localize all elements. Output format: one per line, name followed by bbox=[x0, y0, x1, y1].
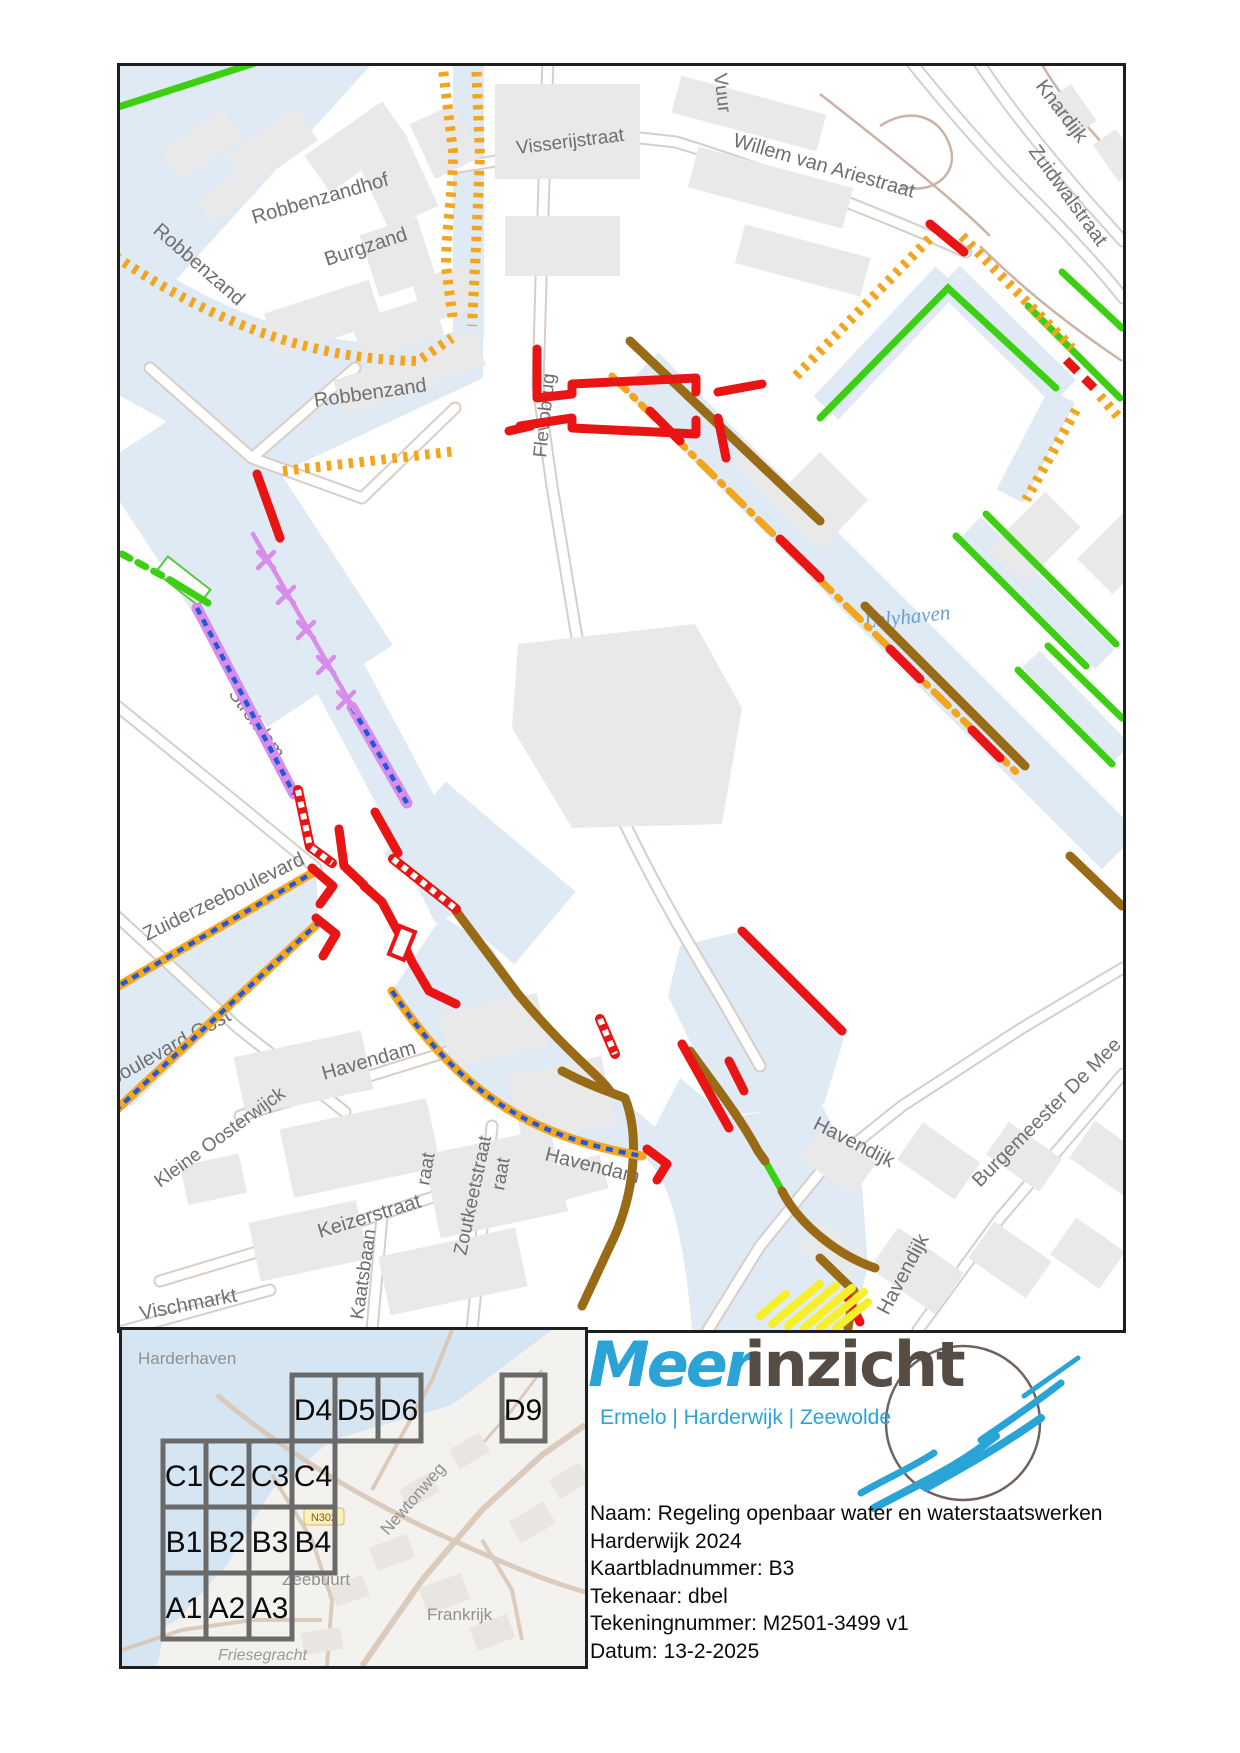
info-line-tekenaar: Tekenaar: dbel bbox=[590, 1583, 1120, 1611]
svg-text:C4: C4 bbox=[294, 1460, 332, 1493]
logo-word-meer: Meer bbox=[588, 1328, 752, 1401]
sheet-index-canvas: N302 Harderhaven Zeebuurt Frankrijk Frie… bbox=[122, 1330, 585, 1666]
svg-text:A2: A2 bbox=[209, 1592, 246, 1625]
svg-text:B1: B1 bbox=[166, 1526, 203, 1559]
main-map-frame: Visserijstraat Willem van Ariestraat Kna… bbox=[117, 63, 1126, 1333]
main-map-canvas: Visserijstraat Willem van Ariestraat Kna… bbox=[120, 66, 1123, 1330]
svg-text:C2: C2 bbox=[208, 1460, 246, 1493]
minimap-label-friesegracht: Friesegracht bbox=[218, 1647, 307, 1664]
info-line-naam-2: Harderwijk 2024 bbox=[590, 1528, 1120, 1556]
info-line-naam: Naam: Regeling openbaar water en waterst… bbox=[590, 1500, 1120, 1528]
svg-text:D5: D5 bbox=[337, 1394, 375, 1427]
minimap-label-frankrijk: Frankrijk bbox=[427, 1605, 493, 1624]
svg-text:D9: D9 bbox=[504, 1394, 542, 1427]
logo: Meerinzicht Ermelo | Harderwijk | Zeewol… bbox=[588, 1332, 1108, 1508]
svg-text:D4: D4 bbox=[294, 1394, 332, 1427]
minimap-label-harderhaven: Harderhaven bbox=[138, 1349, 236, 1368]
minimap-label-newtonweg: Newtonweg bbox=[377, 1459, 450, 1539]
svg-text:A3: A3 bbox=[252, 1592, 289, 1625]
grid-cell-d9: D9 bbox=[502, 1375, 545, 1441]
map-sheet: Visserijstraat Willem van Ariestraat Kna… bbox=[0, 0, 1240, 1753]
svg-text:C3: C3 bbox=[251, 1460, 289, 1493]
logo-subtitle: Ermelo | Harderwijk | Zeewolde bbox=[600, 1406, 891, 1430]
info-line-kaartbladnummer: Kaartbladnummer: B3 bbox=[590, 1555, 1120, 1583]
grid-cell-a2: A2 bbox=[206, 1573, 249, 1639]
svg-text:B3: B3 bbox=[252, 1526, 289, 1559]
road-badge-n302: N302 bbox=[304, 1508, 344, 1525]
svg-text:A1: A1 bbox=[166, 1592, 203, 1625]
title-block-info: Naam: Regeling openbaar water en waterst… bbox=[590, 1500, 1120, 1665]
info-line-tekeningnummer: Tekeningnummer: M2501-3499 v1 bbox=[590, 1610, 1120, 1638]
svg-text:B4: B4 bbox=[295, 1526, 332, 1559]
svg-text:C1: C1 bbox=[165, 1460, 203, 1493]
sheet-index-map: N302 Harderhaven Zeebuurt Frankrijk Frie… bbox=[119, 1327, 588, 1669]
svg-text:D6: D6 bbox=[380, 1394, 418, 1427]
info-line-datum: Datum: 13-2-2025 bbox=[590, 1638, 1120, 1666]
logo-wordmark: Meerinzicht bbox=[588, 1332, 964, 1398]
svg-text:B2: B2 bbox=[209, 1526, 246, 1559]
logo-word-inzicht: inzicht bbox=[744, 1328, 963, 1401]
